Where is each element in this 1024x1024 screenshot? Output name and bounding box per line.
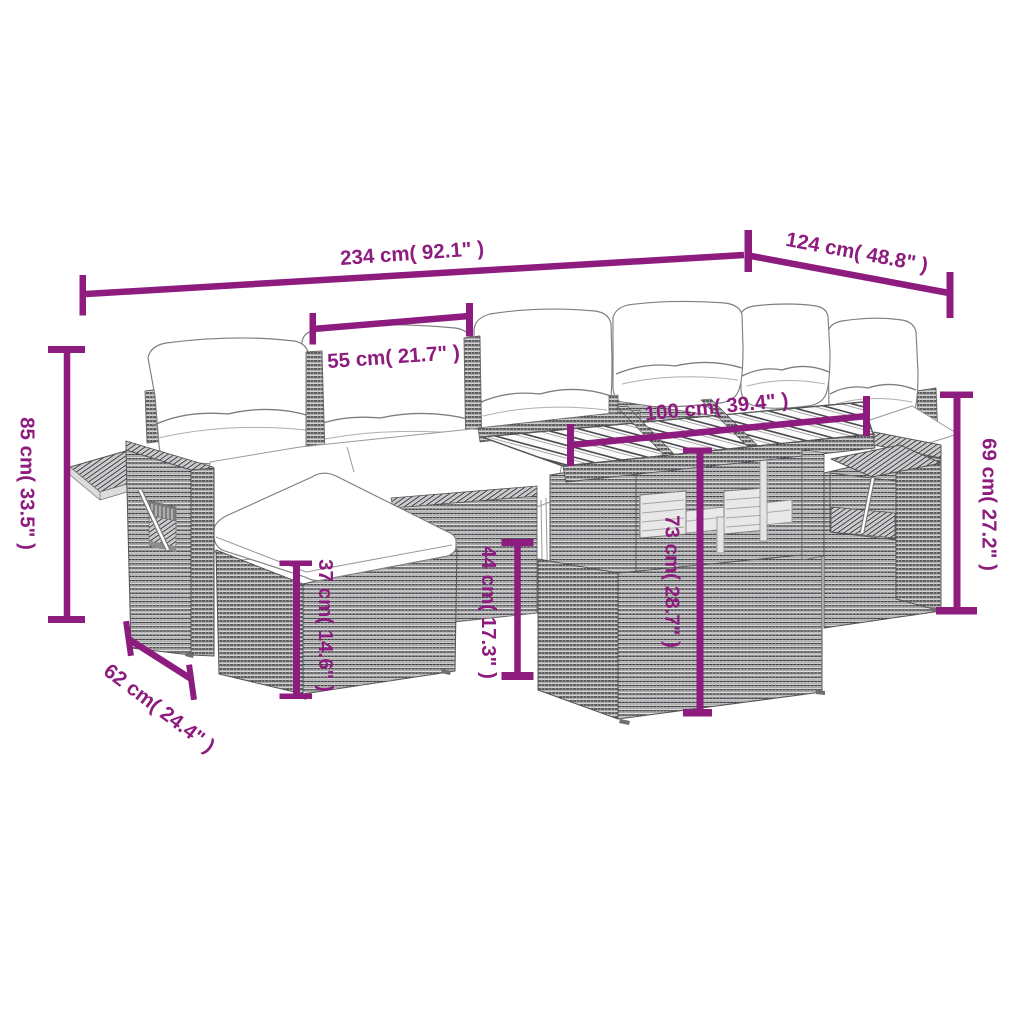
- svg-text:85 cm( 33.5" ): 85 cm( 33.5" ): [16, 417, 39, 550]
- svg-text:37 cm( 14.6" ): 37 cm( 14.6" ): [314, 559, 337, 692]
- svg-text:69 cm( 27.2" ): 69 cm( 27.2" ): [978, 438, 1001, 571]
- svg-text:44 cm( 17.3" ): 44 cm( 17.3" ): [477, 546, 500, 679]
- svg-text:73 cm( 28.7" ): 73 cm( 28.7" ): [661, 515, 684, 648]
